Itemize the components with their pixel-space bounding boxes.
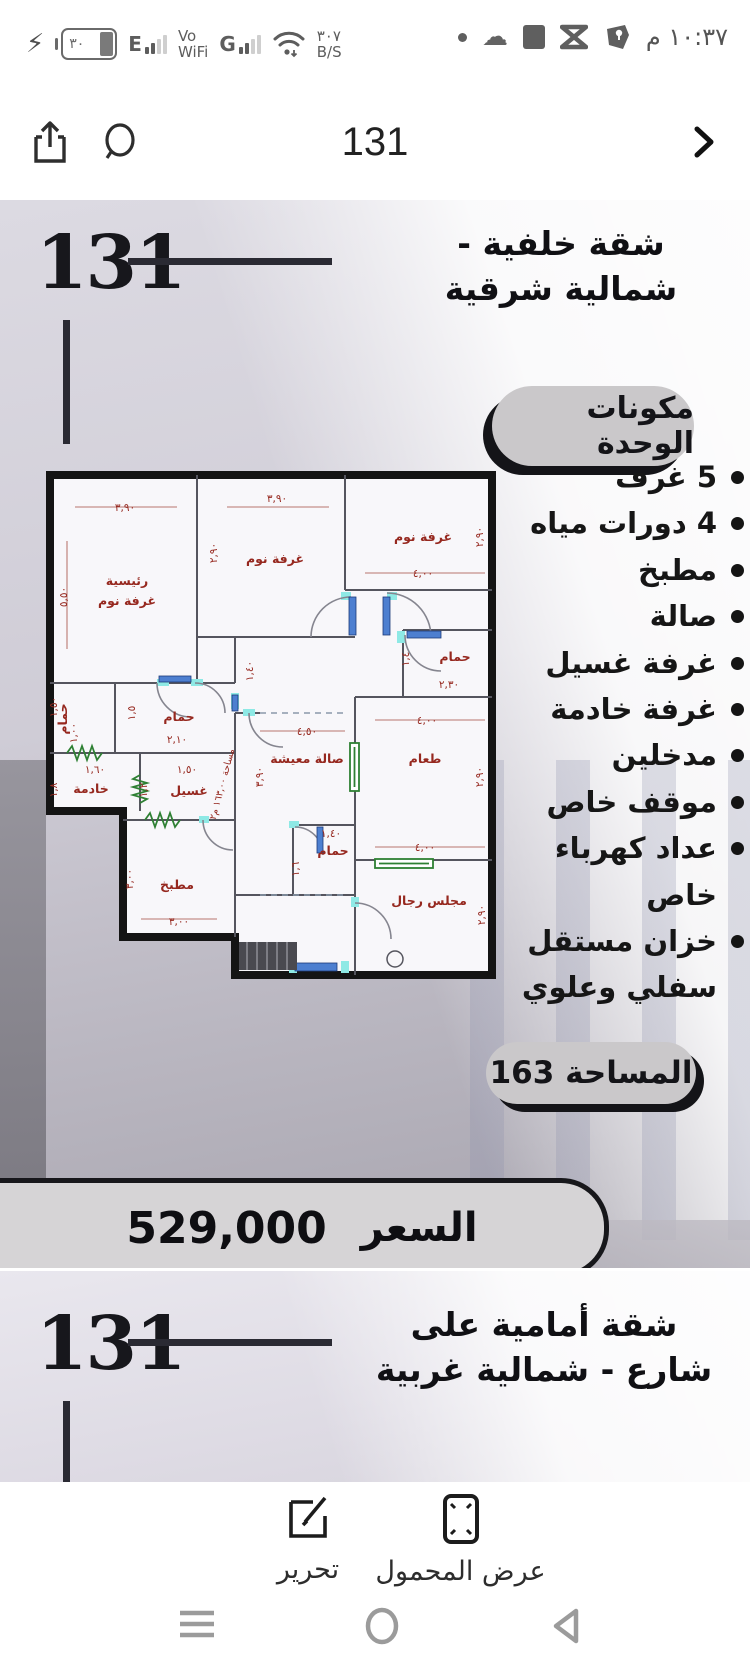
dimension-label: ٤,٠٠ [415,842,435,854]
battery-nub [55,38,58,50]
bullet-icon [731,935,744,948]
dimension-label: ٢,٩٠ [208,543,220,563]
android-menu-button[interactable] [176,1606,218,1642]
feature-item: مطبخ [492,547,744,593]
room-label: غرفة نوم [394,529,452,545]
dimension-label: ١,٦ [290,861,302,876]
feature-item: صالة [492,593,744,639]
price-value: 529,000 [126,1203,326,1254]
listing-poster-front-apartment: 131 شقة أمامية على شارع - شمالية غربية [0,1268,750,1485]
dimension-label: ٣,٩٠ [254,767,266,787]
dimension-label: ١,٥٠ [177,764,197,776]
bullet-icon [731,471,744,484]
logo-rule-horizontal [128,258,332,265]
feature-item: مدخلين [492,732,744,778]
battery-icon: ٣٠ [61,28,117,60]
dimension-label: ١,٥٠ [48,697,60,717]
feature-text: خزان مستقل سفلي وعلوي [492,918,717,1011]
wifi-icon [272,29,306,59]
room-label: غسيل [170,783,208,798]
dimension-label: ٤,٥٠ [297,726,317,738]
sim1-network-type: E [128,34,142,54]
android-home-button[interactable] [362,1606,402,1646]
notification-dot-icon [458,33,467,42]
feature-item: غرفة خادمة [492,686,744,732]
dimension-label: ١,٤ [400,652,412,667]
bullet-icon [731,517,744,530]
feature-item: عداد كهرباء خاص [492,825,744,918]
bullet-icon [731,564,744,577]
battery-fill [100,32,113,56]
feature-text: مطبخ [638,547,717,593]
feature-text: مدخلين [612,732,717,778]
room-label: مجلس رجال [391,893,467,908]
back-button[interactable] [676,114,732,170]
feature-text: غرفة غسيل [545,640,717,686]
apartment-title: شقة خلفية - شمالية شرقية [408,222,714,311]
feature-text: موقف خاص [546,779,717,825]
dimension-label: ٢,٩٠ [476,905,488,925]
sim1-signal: E [128,34,167,54]
room-label: حمام [439,649,470,665]
dimension-label: ٢,٩٠ [474,767,486,787]
feature-item: خزان مستقل سفلي وعلوي [492,918,744,1011]
dimension-label: ٤,٠٠ [413,568,433,580]
edit-icon [283,1492,333,1544]
sim1-signal-bars [145,34,167,54]
sim2-signal: G [219,34,260,54]
status-right-cluster: ☁ ١٠:٣٧ م [458,22,728,52]
edit-label: تحرير [277,1554,339,1585]
room-label: طعام [409,751,442,767]
square-app-icon [523,25,545,49]
bullet-icon [731,610,744,623]
bullet-icon [731,657,744,670]
feature-item: غرفة غسيل [492,640,744,686]
features-list: 5 غرف4 دورات مياهمطبخصالةغرفة غسيلغرفة خ… [492,454,744,1011]
price-banner: 529,000 السعر [0,1178,609,1268]
charging-bolt-icon: ⚡ [26,22,44,66]
feature-text: غرفة خادمة [550,686,717,732]
hourglass-icon [560,24,588,50]
room-label: غرفة نوم [246,551,304,567]
room-label: رئيسية [106,573,148,588]
feature-text: عداد كهرباء خاص [492,825,717,918]
menu-icon [176,1606,218,1642]
page-title: 131 [0,120,750,165]
dimension-label: ٢,٩٠ [474,527,486,547]
room-label: صالة معيشة [270,751,344,766]
edit-button[interactable]: تحرير [243,1492,373,1585]
status-bar: ⚡ ٣٠ E VoWiFi G [0,0,750,88]
app-nav-bar: 131 [0,88,750,200]
dimension-label: ١,٦٠ [85,764,105,776]
bullet-icon [731,749,744,762]
logo-rule-vertical [63,320,70,444]
room-label: حمام [317,843,348,859]
dimension-label: ١,٢ [138,782,150,797]
dimension-label: ٥,٥٠ [58,587,70,607]
bullet-icon [731,842,744,855]
vowifi-label: VoWiFi [178,28,208,60]
room-label: غرفة نوم [98,593,156,609]
home-circle-icon [362,1606,402,1646]
mobile-view-icon [441,1492,481,1546]
network-speed: ٣٠٧B/S [317,28,342,60]
logo-rule-horizontal [128,1339,332,1346]
floor-plan: رئيسيةغرفة نومغرفة نومغرفة نومحمامحمامحم… [45,445,497,980]
feature-item: 5 غرف [492,454,744,500]
dimension-label: ٤,٠٠ [417,715,437,727]
bullet-icon [731,796,744,809]
chevron-forward-icon [689,119,719,165]
dimension-label: ٣,٩٠ [115,502,135,514]
sim2-network-type: G [219,34,235,54]
cloud-icon: ☁ [482,22,508,52]
status-left-cluster: ⚡ ٣٠ E VoWiFi G [26,22,342,66]
clock: ١٠:٣٧ م [646,23,728,51]
dimension-label: ٣,٠٠ [124,869,136,889]
feature-item: 4 دورات مياه [492,500,744,546]
mobile-view-button[interactable]: عرض المحمول [368,1492,553,1587]
dimension-label: ١,٨ [48,782,60,797]
dimension-label: ٣,٠٠ [169,916,189,928]
location-pin-icon [603,23,631,51]
feature-text: 4 دورات مياه [530,500,717,546]
bullet-icon [731,703,744,716]
logo-rule-vertical [63,1401,70,1485]
room-label: حمام [163,709,194,725]
mobile-view-label: عرض المحمول [375,1556,545,1587]
area-badge: المساحة 163 [486,1042,696,1104]
bottom-toolbar: تحرير عرض المحمول [0,1482,750,1679]
feature-item: موقف خاص [492,779,744,825]
room-label: خادمة [73,781,108,796]
dimension-label: ٢,٣٠ [439,679,459,691]
battery-percent: ٣٠ [69,36,84,52]
price-label: السعر [361,1205,478,1251]
dimension-label: ١,٤٠ [244,661,256,681]
sim2-signal-bars [239,34,261,54]
dimension-label: ٢,١٠ [167,734,187,746]
listing-poster-back-apartment: 131 شقة خلفية - شمالية شرقية مكونات الوح… [0,200,750,1268]
dimension-label: ١,٥ [126,706,138,721]
back-triangle-icon [548,1606,584,1646]
apartment-title: شقة أمامية على شارع - شمالية غربية [374,1303,714,1392]
feature-text: 5 غرف [615,454,717,500]
dimension-label: ٣,٩٠ [267,493,287,505]
feature-text: صالة [650,593,717,639]
room-label: مطبخ [160,877,194,892]
dimension-label: ١,٠٠ [68,723,80,743]
dimension-label: ١,٤٠ [321,828,341,840]
android-back-button[interactable] [548,1606,584,1646]
